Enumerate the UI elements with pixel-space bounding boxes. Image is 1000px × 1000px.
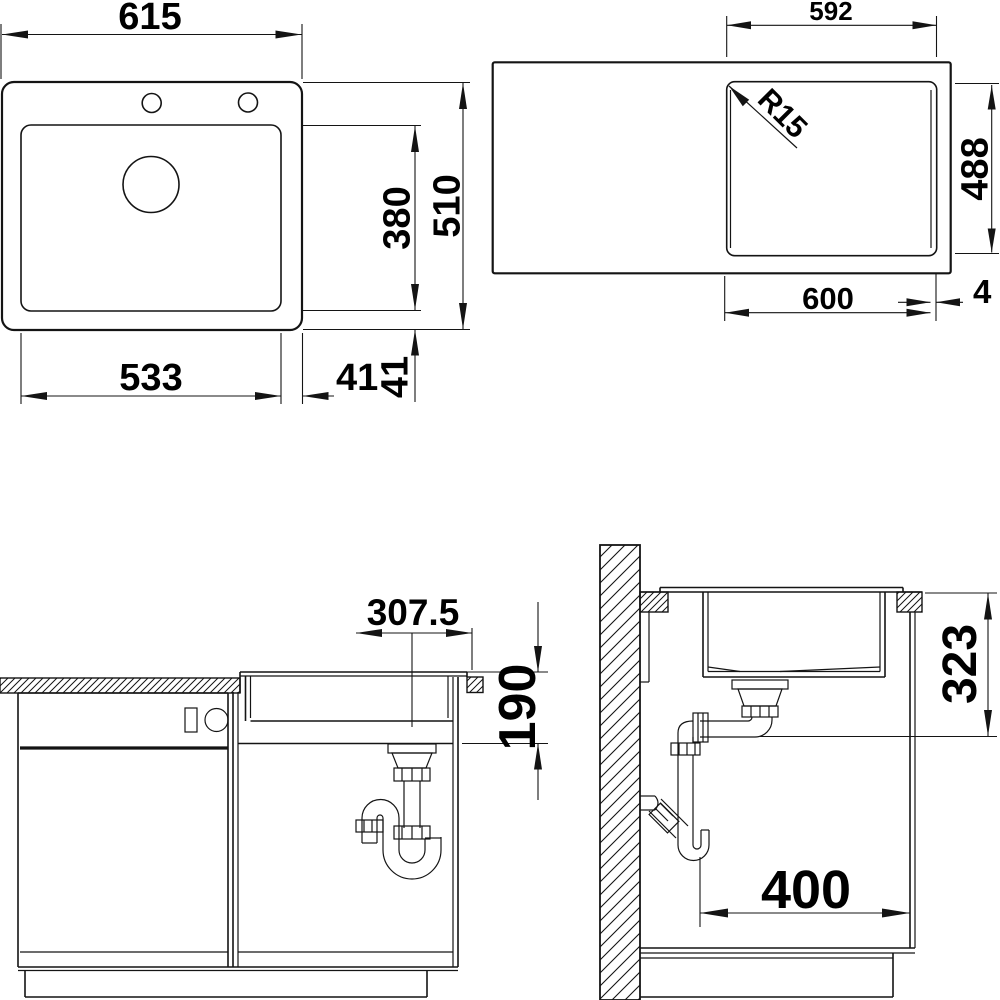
sink-outline [2, 82, 302, 330]
dim-label-190: 190 [489, 664, 547, 751]
dim-label-510: 510 [426, 174, 468, 237]
side-section-view: 323 400 [600, 545, 997, 1000]
dim-drain-setback: 400 [700, 857, 910, 927]
dim-label-400: 400 [761, 860, 851, 920]
tap-hole-left [142, 94, 161, 113]
dim-corner-radius: R15 [729, 83, 813, 148]
dim-label-307-5: 307.5 [367, 592, 460, 633]
strainer-flange-side [732, 680, 788, 689]
dim-overall-width: 615 [1, 0, 302, 79]
dim-label-41h: 41 [336, 357, 378, 399]
dishwasher-button [185, 708, 197, 732]
tap-hole-right [239, 93, 258, 112]
dim-label-323: 323 [934, 624, 987, 704]
drain-hole [123, 157, 179, 213]
side-drain-trap [640, 680, 788, 861]
dim-label-592: 592 [809, 0, 852, 26]
dim-cutout-depth: 488 [954, 84, 999, 254]
dim-label-615: 615 [118, 0, 181, 38]
dim-under-counter-height: 323 [760, 593, 997, 737]
dim-label-600: 600 [802, 281, 854, 316]
counter-section-front-side [897, 592, 922, 612]
side-cabinet [640, 612, 915, 997]
front-drain-trap [356, 744, 441, 879]
dim-center-to-edge: 307.5 [356, 592, 472, 727]
dim-bowl-width-600: 600 [725, 274, 936, 321]
dim-edge-offset-vertical: 41 [374, 330, 419, 403]
sink-base-cabinet [18, 677, 458, 997]
dim-edge-offset-horizontal: 41 [303, 357, 379, 400]
dim-label-4: 4 [973, 273, 992, 310]
dim-label-380: 380 [376, 186, 418, 249]
dim-label-488: 488 [954, 137, 996, 200]
dishwasher-knob [205, 709, 228, 732]
dim-label-41v: 41 [374, 356, 416, 398]
dim-reveal-4: 4 [898, 273, 992, 310]
countertop-section-right [467, 677, 483, 693]
sink-dimension-drawing: 615 533 41 380 [0, 0, 1000, 1000]
dim-label-R15: R15 [751, 83, 813, 145]
dim-bowl-width: 533 [21, 333, 303, 404]
counter-section-wall-side [640, 592, 668, 612]
dim-bowl-depth: 380 [303, 126, 421, 311]
bowl-outline [21, 125, 281, 311]
wall-section [600, 545, 640, 1000]
dim-label-533: 533 [119, 357, 182, 399]
front-section-view: 307.5 190 [0, 592, 548, 997]
countertop-section-left [0, 678, 240, 693]
dim-cutout-width: 592 [727, 0, 937, 57]
countertop-outline [493, 62, 951, 273]
dim-bowl-height: 190 [462, 602, 548, 800]
top-view-sink: 615 533 41 380 [1, 0, 470, 404]
dishwasher-cabinet [18, 693, 228, 967]
strainer-flange [388, 744, 436, 753]
top-view-cutout: R15 592 488 600 [493, 0, 999, 321]
